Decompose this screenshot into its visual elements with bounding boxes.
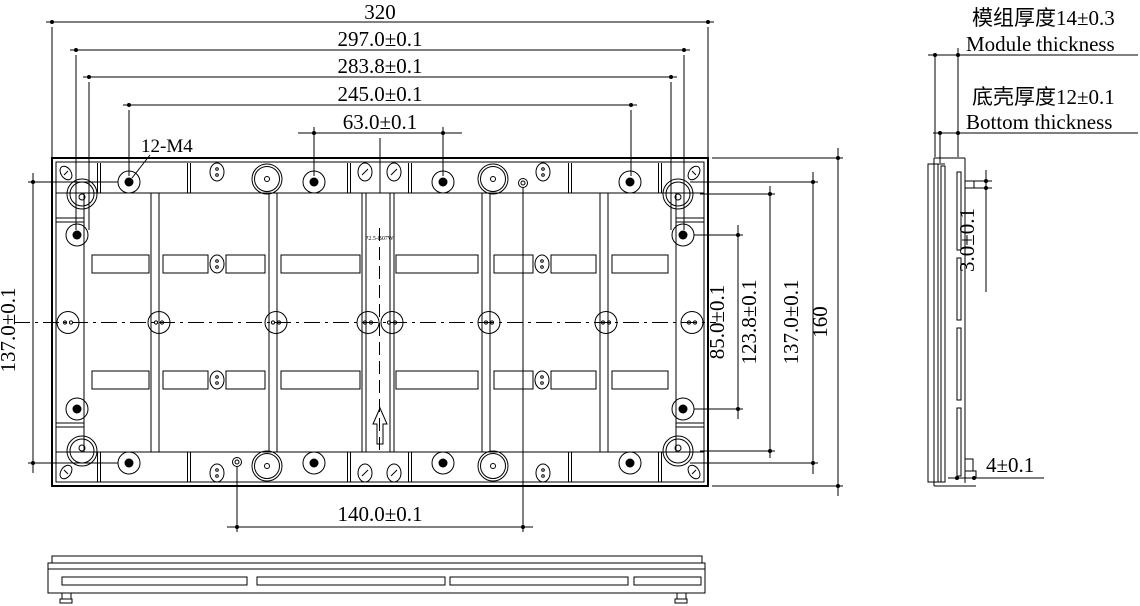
dim-side-hole-spacing: 85.0±0.1	[705, 285, 729, 360]
bottom-thickness-cn: 底壳厚度12±0.1	[972, 85, 1115, 109]
module-thickness-cn: 模组厚度14±0.3	[972, 6, 1115, 30]
dim-inner-span-width: 283.8±0.1	[337, 54, 422, 78]
dim-hole-span-width: 245.0±0.1	[337, 82, 422, 106]
engineering-drawing: P2.5-B07W 320 297.0±0.1 283.8±0.1 245.0±…	[0, 0, 1140, 606]
dim-bolt-span-width: 297.0±0.1	[337, 27, 422, 51]
back-view-panel: P2.5-B07W	[14, 158, 716, 486]
dim-center-hole-spacing: 63.0±0.1	[343, 110, 418, 134]
dim-left-height: 137.0±0.1	[0, 287, 20, 372]
dim-overall-height: 160	[808, 306, 832, 338]
dim-bolt-span-height: 137.0±0.1	[779, 279, 803, 364]
dim-bottom-hole-spacing: 140.0±0.1	[337, 502, 422, 526]
module-thickness-en: Module thickness	[966, 32, 1115, 56]
bottom-thickness-en: Bottom thickness	[966, 110, 1112, 134]
bottom-band-separators	[98, 452, 662, 482]
dim-corner-spacing: 123.8±0.1	[737, 279, 761, 364]
drawing-svg: P2.5-B07W 320 297.0±0.1 283.8±0.1 245.0±…	[0, 0, 1140, 606]
thread-label: 12-M4	[141, 136, 193, 157]
module-model-label: P2.5-B07W	[365, 236, 394, 242]
dim-foot-width: 4±0.1	[986, 453, 1034, 477]
side-view: 模组厚度14±0.3 Module thickness 底壳厚度12±0.1 B…	[928, 6, 1138, 486]
dim-tab-thickness: 3.0±0.1	[955, 208, 979, 272]
bottom-view	[48, 556, 705, 603]
dim-overall-width: 320	[364, 0, 396, 24]
